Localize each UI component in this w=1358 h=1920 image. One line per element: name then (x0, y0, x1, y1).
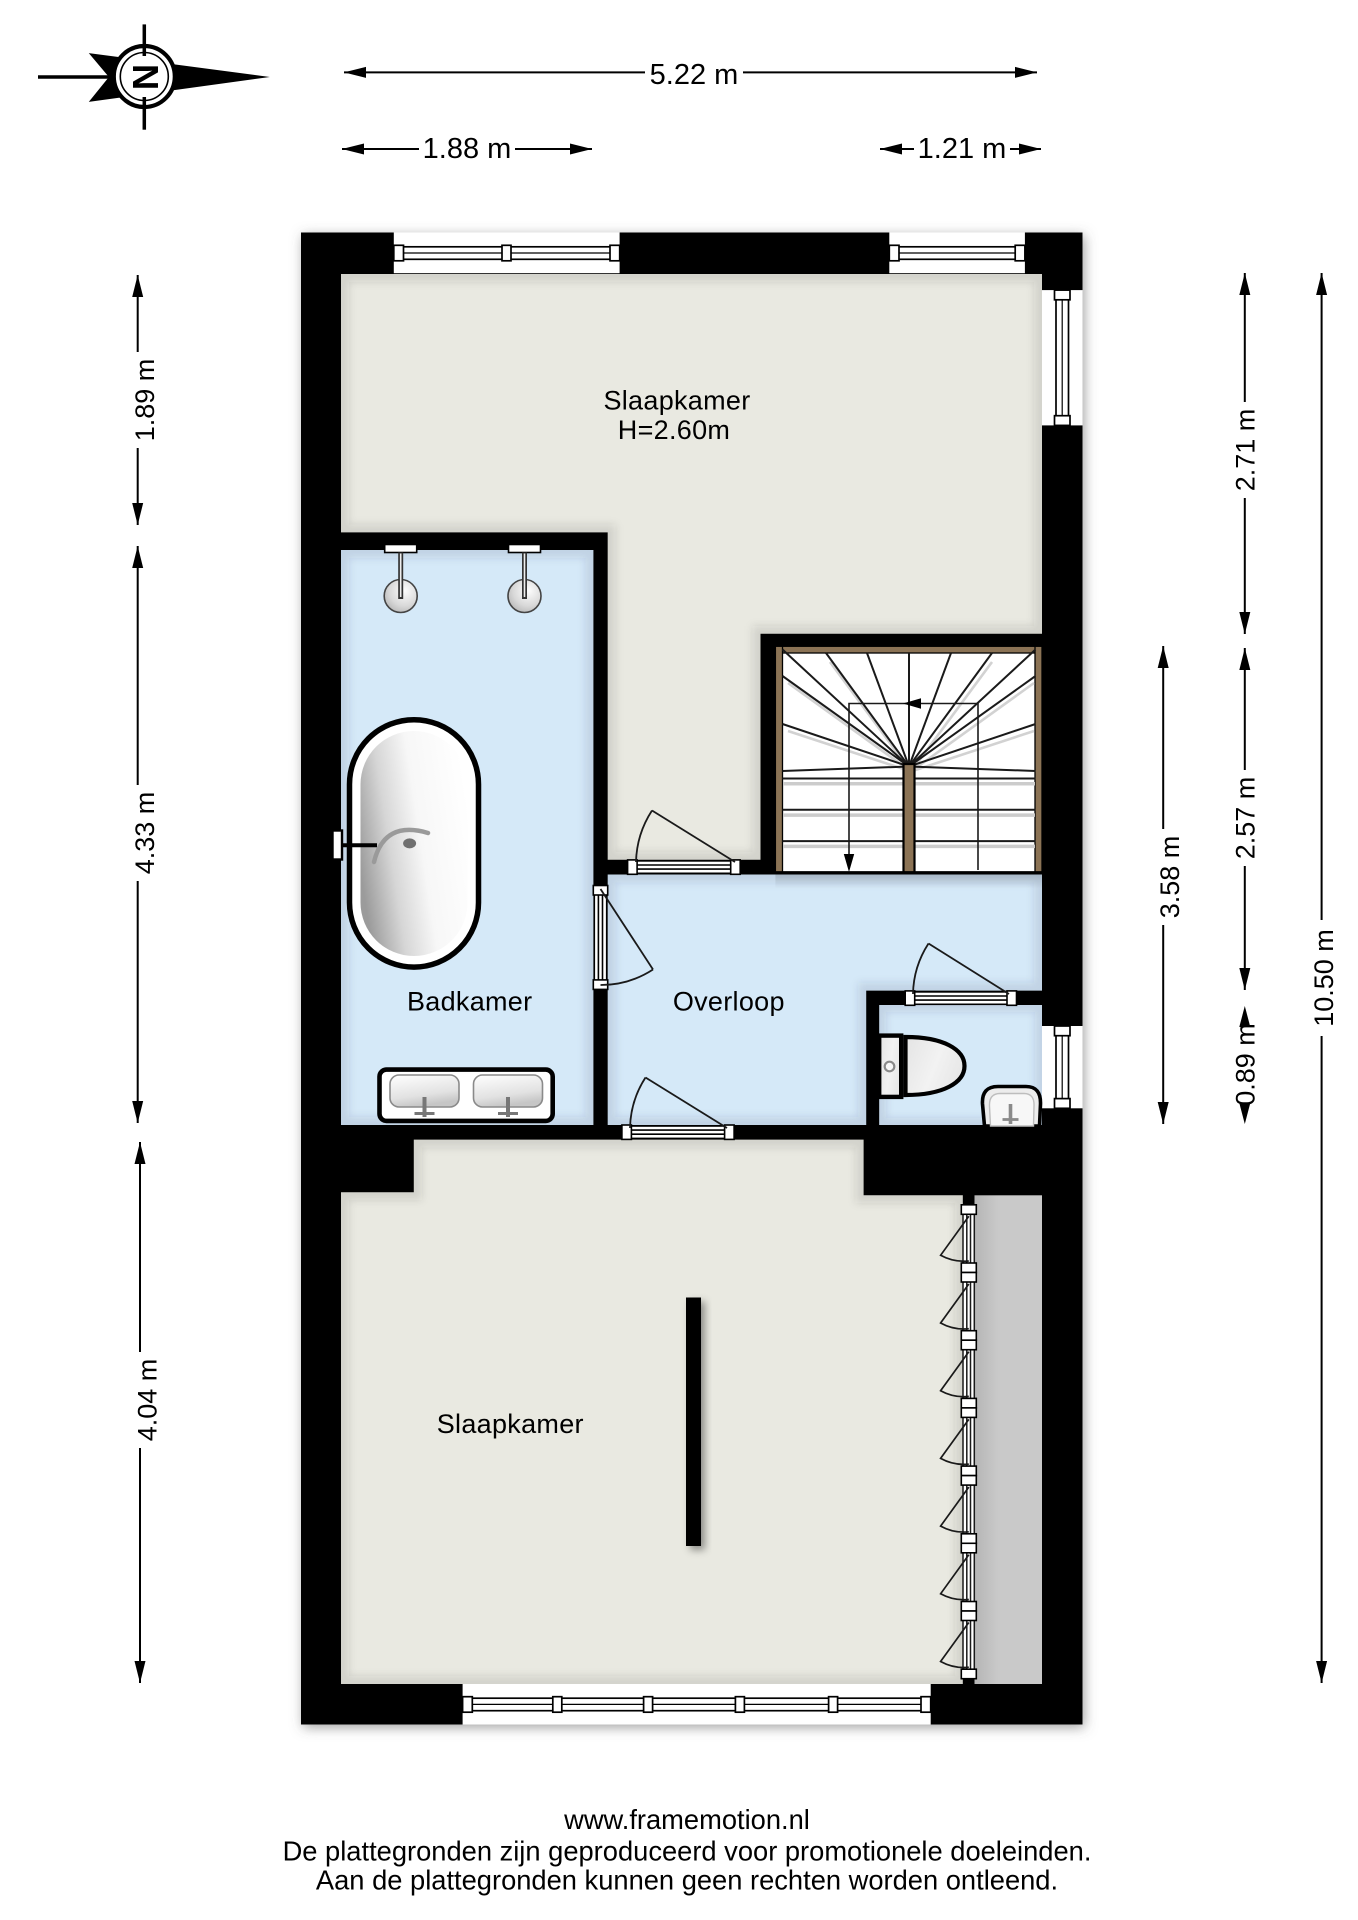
svg-text:Overloop: Overloop (673, 987, 785, 1017)
svg-text:10.50 m: 10.50 m (1309, 929, 1339, 1027)
svg-text:Slaapkamer: Slaapkamer (603, 386, 750, 416)
svg-text:1.89 m: 1.89 m (130, 359, 160, 442)
svg-text:1.21 m: 1.21 m (918, 133, 1007, 165)
svg-text:www.framemotion.nl: www.framemotion.nl (563, 1804, 810, 1835)
svg-text:De plattegronden zijn geproduc: De plattegronden zijn geproduceerd voor … (283, 1836, 1092, 1867)
svg-text:4.33 m: 4.33 m (130, 792, 160, 875)
svg-text:2.57 m: 2.57 m (1231, 777, 1261, 860)
svg-text:5.22 m: 5.22 m (650, 59, 739, 91)
svg-text:N: N (125, 64, 166, 90)
svg-text:H=2.60m: H=2.60m (618, 415, 730, 445)
svg-text:Badkamer: Badkamer (407, 987, 532, 1017)
svg-text:Aan de plattegronden kunnen ge: Aan de plattegronden kunnen geen rechten… (316, 1865, 1058, 1896)
svg-text:3.58 m: 3.58 m (1155, 836, 1185, 919)
svg-text:0.89 m: 0.89 m (1231, 1023, 1261, 1106)
svg-text:2.71 m: 2.71 m (1231, 409, 1261, 492)
svg-text:4.04 m: 4.04 m (133, 1359, 163, 1442)
svg-text:1.88 m: 1.88 m (423, 133, 512, 165)
svg-text:Slaapkamer: Slaapkamer (437, 1409, 584, 1439)
